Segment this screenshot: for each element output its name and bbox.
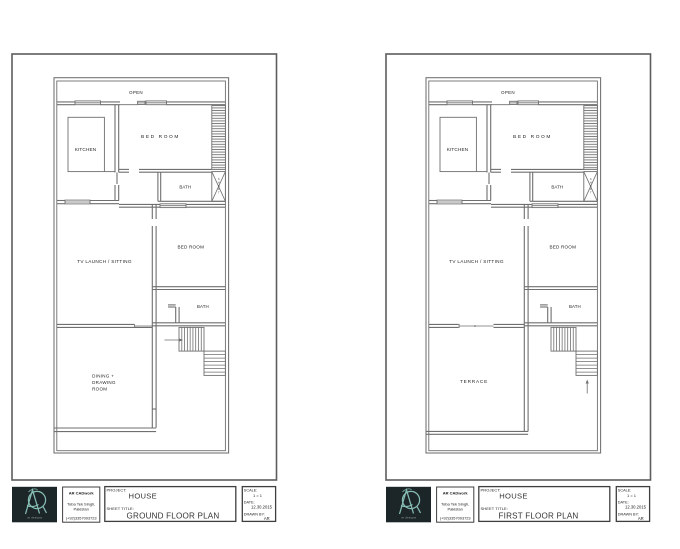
svg-text:SHEET TITLE:: SHEET TITLE: — [107, 506, 135, 511]
svg-text:GROUND FLOOR PLAN: GROUND FLOOR PLAN — [127, 511, 220, 520]
svg-text:OPEN: OPEN — [129, 90, 143, 95]
svg-text:KITCHEN: KITCHEN — [447, 147, 469, 152]
svg-text:FIRST FLOOR PLAN: FIRST FLOOR PLAN — [499, 511, 579, 520]
svg-text:AR: AR — [638, 516, 644, 521]
svg-text:PROJECT:: PROJECT: — [107, 488, 127, 493]
svg-text:Pakistan: Pakistan — [448, 507, 463, 512]
svg-text:1 = 1: 1 = 1 — [253, 493, 263, 498]
svg-text:AR CADwork: AR CADwork — [69, 491, 95, 496]
svg-text:ar designs: ar designs — [27, 515, 42, 519]
svg-text:AR CADwork: AR CADwork — [443, 491, 469, 496]
svg-text:S: S — [590, 177, 592, 181]
svg-text:PROJECT:: PROJECT: — [481, 488, 501, 493]
svg-text:AR: AR — [264, 516, 270, 521]
svg-text:OPEN: OPEN — [501, 90, 515, 95]
svg-text:H: H — [218, 180, 220, 184]
svg-text:BATH: BATH — [197, 304, 209, 309]
svg-text:12.30.2015: 12.30.2015 — [251, 505, 273, 510]
svg-text:ar designs: ar designs — [401, 515, 416, 519]
svg-text:H: H — [590, 180, 592, 184]
svg-text:HOUSE: HOUSE — [129, 492, 158, 501]
svg-text:BATH: BATH — [551, 185, 563, 190]
svg-text:BATH: BATH — [569, 304, 581, 309]
svg-text:BED ROOM: BED ROOM — [549, 245, 576, 250]
svg-text:BATH: BATH — [179, 185, 191, 190]
svg-text:A: A — [218, 184, 220, 188]
svg-text:12.30.2015: 12.30.2015 — [625, 505, 647, 510]
svg-text:A: A — [590, 184, 592, 188]
svg-text:TERRACE: TERRACE — [460, 379, 488, 384]
svg-text:KITCHEN: KITCHEN — [75, 147, 97, 152]
svg-text:BED ROOM: BED ROOM — [141, 134, 180, 140]
svg-text:HOUSE: HOUSE — [499, 492, 528, 501]
svg-text:TV LAUNCH / SITTING: TV LAUNCH / SITTING — [77, 259, 132, 264]
svg-text:1 = 1: 1 = 1 — [627, 493, 637, 498]
svg-text:S: S — [218, 177, 220, 181]
svg-text:DRAWING: DRAWING — [92, 380, 116, 385]
svg-text:Pakistan: Pakistan — [74, 507, 89, 512]
svg-text:BED ROOM: BED ROOM — [177, 245, 204, 250]
svg-text:(+92)3357093723: (+92)3357093723 — [440, 516, 471, 521]
svg-text:(+92)3357093723: (+92)3357093723 — [66, 516, 97, 521]
svg-text:DRAWN BY:: DRAWN BY: — [244, 513, 265, 517]
svg-text:TV LAUNCH / SITTING: TV LAUNCH / SITTING — [449, 259, 504, 264]
svg-text:DRAWN BY:: DRAWN BY: — [618, 513, 639, 517]
svg-text:DINING +: DINING + — [92, 373, 114, 378]
svg-text:ROOM: ROOM — [92, 386, 107, 391]
svg-text:SCALE:: SCALE: — [618, 488, 632, 492]
svg-text:BED ROOM: BED ROOM — [513, 134, 552, 140]
svg-text:SCALE:: SCALE: — [244, 488, 258, 492]
svg-text:SHEET TITLE:: SHEET TITLE: — [481, 506, 509, 511]
